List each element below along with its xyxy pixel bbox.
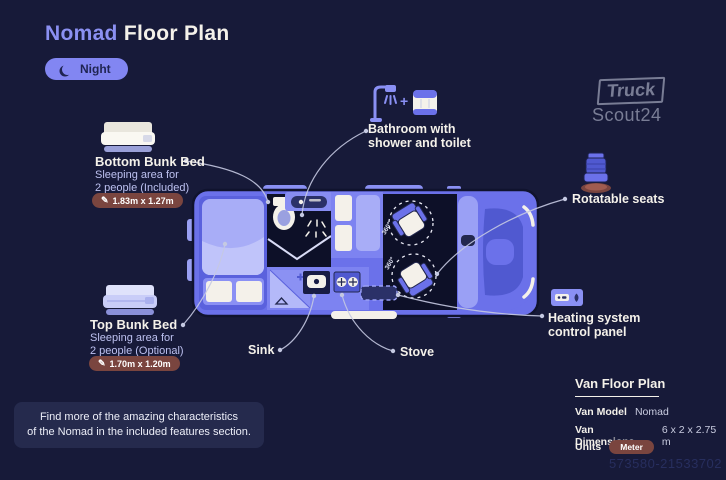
spec-panel-title: Van Floor Plan xyxy=(575,376,665,391)
spec-row-model: Van Model Nomad xyxy=(575,406,669,418)
floor-plan-infographic: Nomad Floor Plan Night Truck Scout24 xyxy=(0,0,726,480)
bathroom-label: Bathroom with shower and toilet xyxy=(368,122,471,150)
heating-panel-marker xyxy=(361,286,397,300)
cab-front xyxy=(458,192,536,312)
vanity-sink xyxy=(285,192,333,211)
bottom-bunk-title: Bottom Bunk Bed xyxy=(95,154,205,169)
listing-id-watermark: 573580-21533702 xyxy=(570,456,722,471)
logo-truck-box: Truck xyxy=(597,77,666,105)
spec-row-units: Units Meter xyxy=(575,440,654,454)
page-title-model: Nomad xyxy=(45,22,118,45)
top-bunk-title: Top Bunk Bed xyxy=(90,317,177,332)
units-meter-badge[interactable]: Meter xyxy=(609,440,654,454)
kitchen-area xyxy=(267,267,369,310)
moon-icon xyxy=(62,64,73,75)
toilet-icon xyxy=(412,88,438,116)
stove-label: Stove xyxy=(400,345,434,359)
van-floorplan-drawing: 360° 360° xyxy=(185,183,545,321)
sink-unit xyxy=(303,271,330,294)
heating-panel-icon xyxy=(551,289,583,306)
sink-label: Sink xyxy=(248,343,274,357)
bottom-bunk-dimensions-badge: ✎ 1.83m x 1.27m xyxy=(92,193,183,208)
bottom-bunk-bed-icon xyxy=(99,121,157,155)
bed-area xyxy=(199,196,267,310)
night-mode-toggle[interactable]: Night xyxy=(45,58,128,80)
features-note: Find more of the amazing characteristics… xyxy=(14,402,264,448)
night-mode-label: Night xyxy=(80,62,111,76)
plus-icon: + xyxy=(400,93,408,109)
bottom-bunk-description: Sleeping area for 2 people (Included) xyxy=(95,169,189,194)
shower-icon xyxy=(368,84,400,122)
rotatable-seats-label: Rotatable seats xyxy=(572,192,664,206)
page-title-rest: Floor Plan xyxy=(124,22,230,45)
pencil-icon: ✎ xyxy=(98,358,106,369)
entry-step xyxy=(331,311,397,319)
truckscout24-logo: Truck Scout24 xyxy=(592,78,664,126)
rotatable-seat-icon xyxy=(578,152,614,194)
stove-unit xyxy=(334,272,360,292)
pencil-icon: ✎ xyxy=(101,195,109,206)
heating-label: Heating system control panel xyxy=(548,311,640,339)
spec-panel-divider xyxy=(575,396,659,397)
top-bunk-description: Sleeping area for 2 people (Optional) xyxy=(90,332,184,357)
top-bunk-dimensions-badge: ✎ 1.70m x 1.20m xyxy=(89,356,180,371)
dinette-bench xyxy=(331,192,383,258)
page-title: Nomad Floor Plan xyxy=(45,22,230,46)
logo-scout-text: Scout24 xyxy=(592,105,664,126)
top-bunk-bed-icon xyxy=(101,284,159,318)
